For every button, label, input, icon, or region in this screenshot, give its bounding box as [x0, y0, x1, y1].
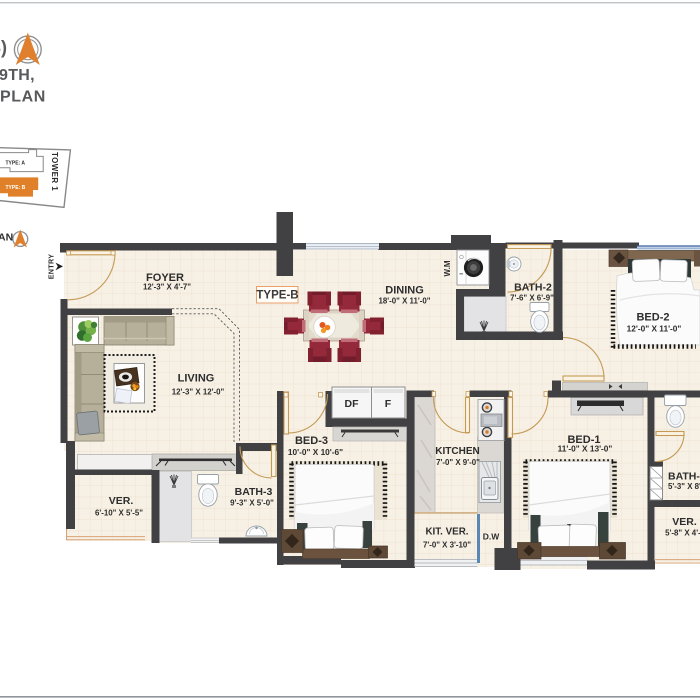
svg-text:BATH-2: BATH-2 — [514, 282, 552, 294]
svg-text:BED-2: BED-2 — [636, 312, 669, 324]
svg-text:LIVING: LIVING — [178, 373, 215, 385]
svg-text:9TH,: 9TH, — [0, 67, 35, 84]
svg-text:BATH-3: BATH-3 — [235, 486, 273, 498]
svg-text:11'-0" X 13'-0": 11'-0" X 13'-0" — [558, 444, 613, 454]
svg-text:12'-3" X 4'-7": 12'-3" X 4'-7" — [143, 283, 191, 292]
svg-text:PLAN: PLAN — [0, 89, 46, 106]
svg-text:DINING: DINING — [385, 285, 424, 297]
svg-text:TYPE: A: TYPE: A — [6, 160, 26, 166]
svg-text:18'-0" X 11'-0": 18'-0" X 11'-0" — [378, 297, 430, 306]
svg-text:3): 3) — [0, 38, 7, 58]
svg-text:F: F — [385, 398, 392, 410]
svg-text:12'-0" X 11'-0": 12'-0" X 11'-0" — [627, 324, 682, 334]
svg-text:7'-0" X 9'-0": 7'-0" X 9'-0" — [436, 458, 480, 467]
svg-text:6'-10" X 5'-5": 6'-10" X 5'-5" — [95, 509, 143, 518]
svg-text:TYPE: B: TYPE: B — [6, 185, 26, 191]
svg-text:VER.: VER. — [109, 495, 134, 507]
svg-text:KITCHEN: KITCHEN — [435, 446, 479, 457]
svg-text:7'-0" X 3'-10": 7'-0" X 3'-10" — [423, 541, 471, 550]
svg-text:ENTRY: ENTRY — [47, 254, 56, 280]
svg-text:10'-0" X 10'-6": 10'-0" X 10'-6" — [288, 447, 343, 457]
svg-text:9'-3" X 5'-0": 9'-3" X 5'-0" — [230, 499, 274, 508]
svg-text:7'-6" X 6'-9": 7'-6" X 6'-9" — [510, 294, 554, 303]
svg-text:5'-3" X 8'-0": 5'-3" X 8'-0" — [668, 482, 700, 491]
svg-text:TYPE-B: TYPE-B — [256, 290, 298, 302]
svg-text:AN: AN — [0, 232, 13, 244]
svg-text:DF: DF — [345, 398, 360, 410]
svg-text:W.M: W.M — [443, 260, 452, 276]
svg-text:D.W: D.W — [483, 532, 501, 542]
svg-text:VER.: VER. — [672, 516, 697, 528]
svg-text:TOWER 1: TOWER 1 — [50, 152, 59, 191]
svg-text:BATH-1: BATH-1 — [668, 471, 700, 483]
svg-text:KIT. VER.: KIT. VER. — [425, 527, 468, 538]
svg-text:12'-3" X 12'-0": 12'-3" X 12'-0" — [172, 388, 225, 397]
svg-text:BED-3: BED-3 — [295, 435, 328, 447]
svg-text:5'-8" X 4'-1": 5'-8" X 4'-1" — [665, 529, 700, 538]
